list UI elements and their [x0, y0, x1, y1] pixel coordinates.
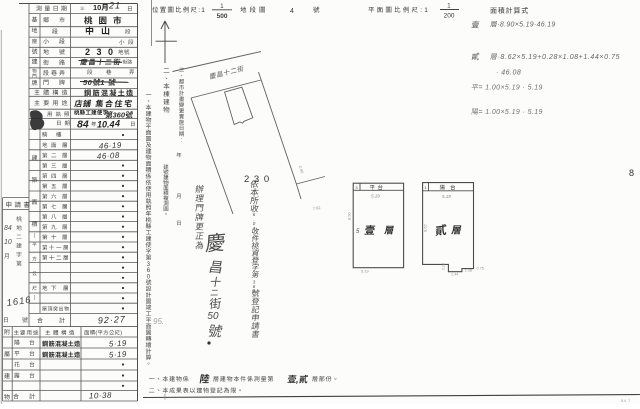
svg-text:10: 10 [93, 3, 101, 12]
svg-text:4: 4 [114, 119, 120, 129]
svg-text:50: 50 [207, 311, 219, 322]
svg-text:5.19: 5.19 [361, 269, 370, 274]
svg-text:8.62: 8.62 [423, 223, 428, 232]
svg-text:5·19: 5·19 [109, 339, 128, 349]
svg-text::1: :1 [198, 7, 206, 14]
svg-text:· 46.08: · 46.08 [496, 70, 521, 77]
svg-text:(: ( [95, 331, 97, 337]
svg-text:1.08: 1.08 [465, 268, 472, 272]
svg-text:84 7: 84 7 [621, 398, 631, 403]
svg-text:84: 84 [77, 119, 89, 131]
svg-text:0.28: 0.28 [442, 263, 446, 270]
svg-text:·8.90×5.19·46.19: ·8.90×5.19·46.19 [497, 22, 555, 29]
svg-text:500: 500 [217, 13, 228, 20]
svg-text:10·38: 10·38 [89, 391, 112, 401]
svg-text:95.: 95. [153, 317, 164, 326]
svg-text:21: 21 [108, 1, 121, 11]
svg-text:8: 8 [629, 168, 634, 178]
svg-text:46·19: 46·19 [99, 141, 122, 151]
svg-text::1: :1 [420, 7, 430, 14]
svg-text:,: , [295, 375, 299, 385]
svg-text:46·08: 46·08 [97, 151, 120, 161]
svg-text:0.75: 0.75 [477, 267, 484, 271]
svg-text:8.90: 8.90 [347, 211, 352, 220]
svg-text:84: 84 [4, 225, 12, 232]
svg-text:1.44: 1.44 [451, 273, 458, 277]
svg-text:): ) [120, 331, 122, 337]
svg-text:10.4: 10.4 [97, 120, 115, 130]
svg-text:50: 50 [83, 78, 93, 87]
svg-text:10: 10 [4, 239, 12, 246]
svg-text:= 1.00×5.19 · 5.19: = 1.00×5.19 · 5.19 [478, 109, 542, 116]
svg-text:200: 200 [444, 13, 455, 20]
svg-text:5.19: 5.19 [371, 194, 380, 199]
svg-text:= 1.00×5.19 · 5.19: = 1.00×5.19 · 5.19 [478, 85, 542, 92]
svg-text:5.19: 5.19 [442, 194, 451, 199]
svg-text:5·19: 5·19 [109, 350, 128, 360]
svg-text:4: 4 [290, 8, 294, 15]
svg-text:·8.62×5.19+0.28×1.08+1.44×0.75: ·8.62×5.19+0.28×1.08+1.44×0.75 [498, 54, 621, 61]
svg-text:92·27: 92·27 [98, 314, 127, 325]
svg-text:2 3 0: 2 3 0 [85, 47, 115, 57]
svg-text:1: 1 [100, 78, 105, 87]
svg-text:2 3 0: 2 3 0 [244, 174, 270, 185]
